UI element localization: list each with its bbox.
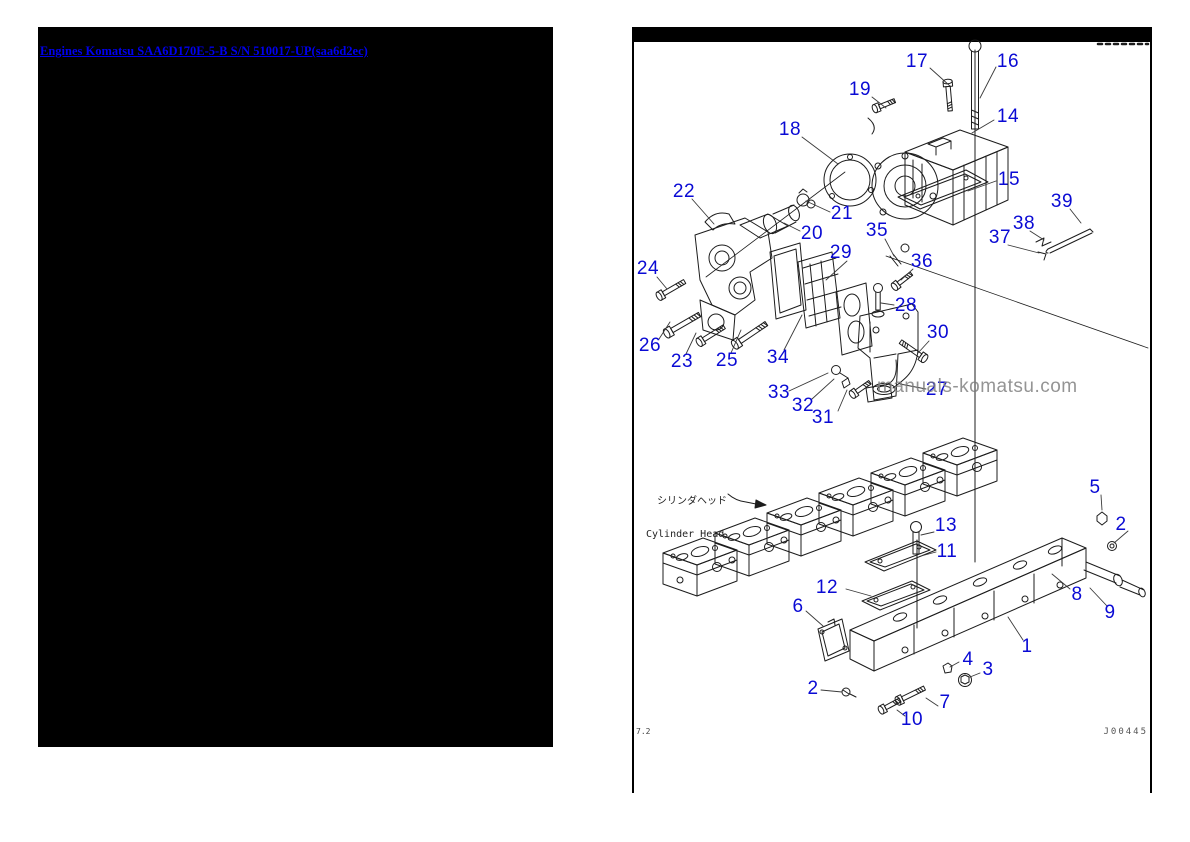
part-label-39[interactable]: 39 bbox=[1051, 191, 1073, 213]
part-label-21[interactable]: 21 bbox=[831, 203, 853, 225]
part-label-38[interactable]: 38 bbox=[1013, 213, 1035, 235]
part-label-16[interactable]: 16 bbox=[997, 51, 1019, 73]
part-label-25[interactable]: 25 bbox=[716, 350, 738, 372]
part-label-30[interactable]: 30 bbox=[927, 322, 949, 344]
part-label-5[interactable]: 5 bbox=[1089, 477, 1100, 499]
part-label-14[interactable]: 14 bbox=[997, 106, 1019, 128]
part-label-28[interactable]: 28 bbox=[895, 295, 917, 317]
part-label-29[interactable]: 29 bbox=[830, 242, 852, 264]
page: Engines Komatsu SAA6D170E-5-B S/N 510017… bbox=[0, 0, 1190, 842]
part-label-2[interactable]: 2 bbox=[807, 678, 818, 700]
part-label-8[interactable]: 8 bbox=[1071, 584, 1082, 606]
part-label-6[interactable]: 6 bbox=[792, 596, 803, 618]
part-labels-layer: 1716191418152221203938373536292824302623… bbox=[0, 0, 1190, 842]
part-label-1[interactable]: 1 bbox=[1021, 636, 1032, 658]
part-label-13[interactable]: 13 bbox=[935, 515, 957, 537]
part-label-24[interactable]: 24 bbox=[637, 258, 659, 280]
part-label-2[interactable]: 2 bbox=[1115, 514, 1126, 536]
part-label-19[interactable]: 19 bbox=[849, 79, 871, 101]
part-label-23[interactable]: 23 bbox=[671, 351, 693, 373]
part-label-33[interactable]: 33 bbox=[768, 382, 790, 404]
part-label-11[interactable]: 11 bbox=[937, 541, 958, 563]
part-label-34[interactable]: 34 bbox=[767, 347, 789, 369]
part-label-17[interactable]: 17 bbox=[906, 51, 928, 73]
part-label-36[interactable]: 36 bbox=[911, 251, 933, 273]
part-label-31[interactable]: 31 bbox=[812, 407, 834, 429]
part-label-37[interactable]: 37 bbox=[989, 227, 1011, 249]
part-label-7[interactable]: 7 bbox=[939, 692, 950, 714]
part-label-3[interactable]: 3 bbox=[982, 659, 993, 681]
part-label-12[interactable]: 12 bbox=[816, 577, 838, 599]
watermark: manuals-komatsu.com bbox=[877, 376, 1078, 398]
part-label-20[interactable]: 20 bbox=[801, 223, 823, 245]
part-label-35[interactable]: 35 bbox=[866, 220, 888, 242]
part-label-26[interactable]: 26 bbox=[639, 335, 661, 357]
part-label-18[interactable]: 18 bbox=[779, 119, 801, 141]
part-label-22[interactable]: 22 bbox=[673, 181, 695, 203]
part-label-10[interactable]: 10 bbox=[901, 709, 923, 731]
part-label-15[interactable]: 15 bbox=[998, 169, 1020, 191]
part-label-9[interactable]: 9 bbox=[1104, 602, 1115, 624]
part-label-4[interactable]: 4 bbox=[962, 649, 973, 671]
part-label-32[interactable]: 32 bbox=[792, 395, 814, 417]
